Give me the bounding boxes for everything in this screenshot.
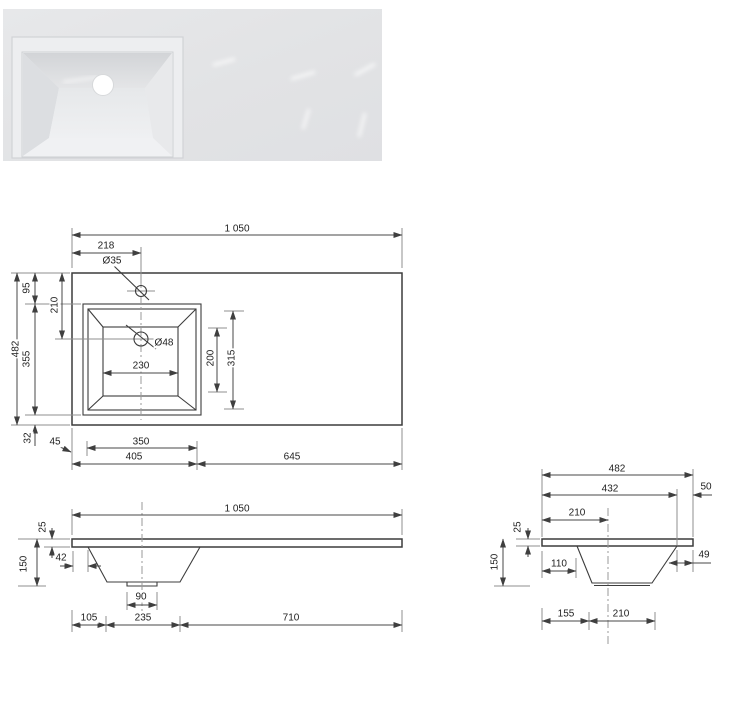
dim-side-total-depth: 482 xyxy=(608,464,627,475)
dim-plan-left-margin: 45 xyxy=(48,437,61,448)
dim-plan-drain-diameter: Ø48 xyxy=(154,338,175,349)
dim-plan-total-depth: 482 xyxy=(11,340,22,359)
dim-side-thickness: 25 xyxy=(513,520,524,533)
dim-front-total-width: 1 050 xyxy=(223,504,250,515)
dim-plan-total-width: 1 050 xyxy=(223,224,250,235)
dim-plan-basin-width: 350 xyxy=(132,437,151,448)
dim-plan-faucet-offset: 218 xyxy=(97,241,116,252)
dim-side-front-to-center: 210 xyxy=(568,508,587,519)
dim-side-front-offset: 155 xyxy=(557,609,576,620)
dim-plan-inner-width: 230 xyxy=(132,361,151,372)
dim-front-edge-to-wall: 42 xyxy=(54,553,67,564)
dim-side-back-overhang: 50 xyxy=(699,482,712,493)
dim-side-wall-to-back: 49 xyxy=(697,550,710,561)
dim-plan-top-margin: 95 xyxy=(22,281,33,294)
dim-plan-bottom-margin: 32 xyxy=(23,431,34,444)
dim-plan-faucet-diameter: Ø35 xyxy=(102,256,123,267)
dim-side-height: 150 xyxy=(490,553,501,572)
dim-front-thickness: 25 xyxy=(38,520,49,533)
dim-plan-inner-depth: 200 xyxy=(206,349,217,368)
dim-front-left-offset: 105 xyxy=(80,613,99,624)
dim-front-bottom-width: 235 xyxy=(134,613,153,624)
technical-drawing-page: 1 050 218 Ø35 482 95 355 32 210 45 350 4… xyxy=(0,0,736,702)
dim-side-bottom-depth: 210 xyxy=(612,609,631,620)
front-view xyxy=(18,502,402,632)
dim-front-drain-width: 90 xyxy=(134,592,147,603)
dim-plan-faucet-depth: 210 xyxy=(50,296,61,315)
dim-plan-basin-depth: 355 xyxy=(22,350,33,369)
dim-front-height: 150 xyxy=(19,555,30,574)
dim-plan-right-section: 645 xyxy=(283,452,302,463)
dim-side-edge-to-wall: 110 xyxy=(550,559,568,570)
dim-side-front-section: 432 xyxy=(601,484,620,495)
dimension-drawing xyxy=(0,0,736,702)
dim-front-right-offset: 710 xyxy=(282,613,301,624)
side-view xyxy=(494,469,712,645)
dim-plan-opening-depth: 315 xyxy=(227,349,238,368)
dim-plan-left-section: 405 xyxy=(125,452,144,463)
